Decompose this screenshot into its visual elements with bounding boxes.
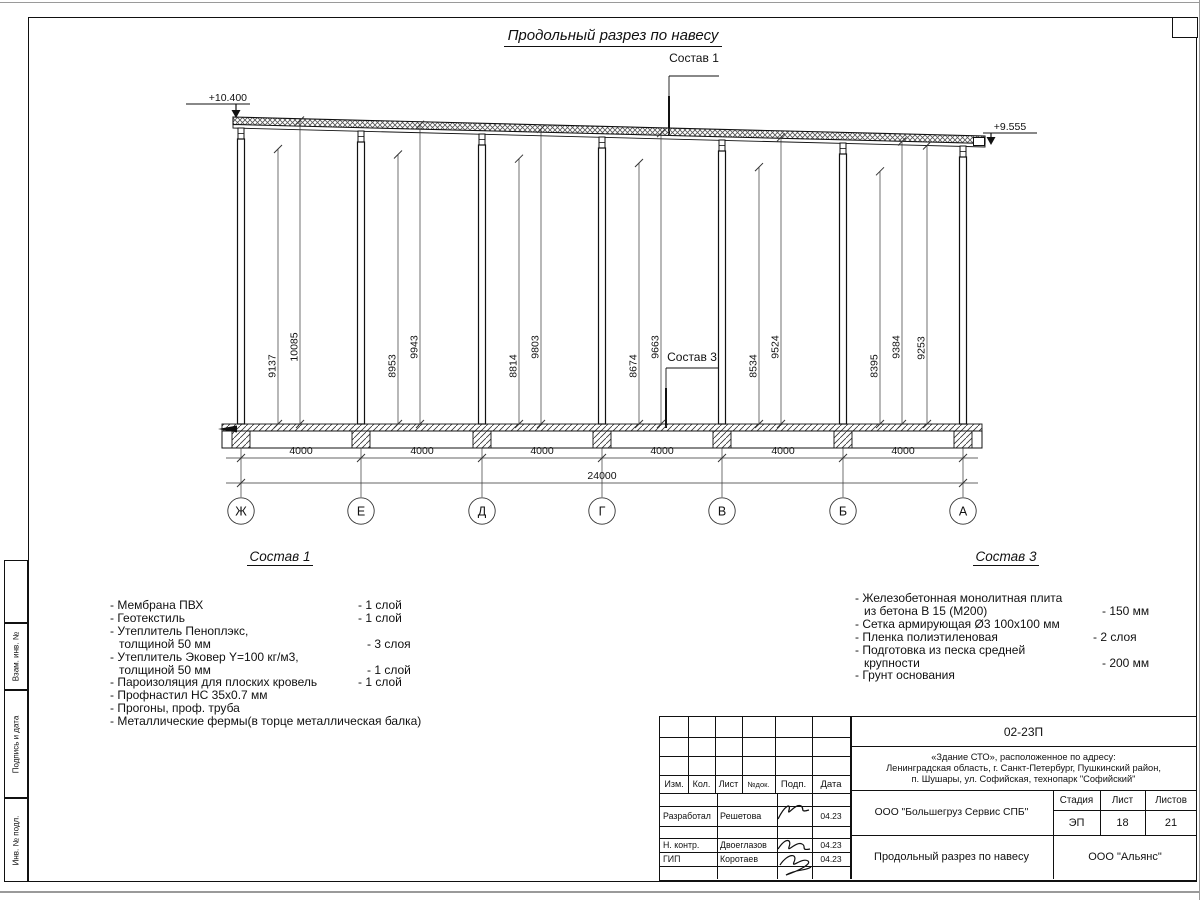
- spec-row: - Утеплитель Пеноплэкс,: [110, 625, 455, 638]
- bay-dimension: 8534 9524: [748, 133, 786, 428]
- column: [599, 137, 606, 424]
- svg-text:8395: 8395: [869, 354, 881, 378]
- callout-slab: Состав 3: [666, 350, 718, 428]
- spec-row: - Пленка полиэтиленовая- 2 слоя: [855, 631, 1200, 644]
- tb-doc-code: 02-23П: [850, 717, 1197, 746]
- svg-text:А: А: [959, 505, 968, 519]
- tb-date-gip: 04.23: [812, 852, 850, 866]
- tb-col-list: Лист: [715, 775, 742, 793]
- tb-org: ООО "Альянс": [1053, 835, 1197, 879]
- margin-box-podpis: Подпись и дата: [4, 690, 28, 798]
- callout-slab-label: Состав 3: [667, 350, 717, 364]
- margin-box-empty: [4, 560, 28, 623]
- axis-bubbles: Ж Е Д Г В Б А: [228, 498, 976, 524]
- elevation-left-value: +10.400: [209, 92, 247, 104]
- column: [960, 146, 967, 424]
- svg-text:Е: Е: [357, 505, 365, 519]
- spec-row: - Геотекстиль- 1 слой: [110, 612, 455, 625]
- margin-box-vzam: Взам. инв. №: [4, 623, 28, 690]
- title-block: Изм. Кол. Лист №док. Подп. Дата Разработ…: [659, 716, 1197, 881]
- sostav3-list: - Железобетонная монолитная плита из бет…: [855, 592, 1200, 682]
- callout-roof: Состав 1: [669, 51, 719, 139]
- tb-role-ncontrol: Н. контр.: [660, 838, 717, 852]
- svg-text:8814: 8814: [508, 354, 520, 378]
- height-end: 9253: [916, 336, 928, 360]
- paper-edge-bottom: [0, 891, 1200, 893]
- spec-row: - Утеплитель Эковер Y=100 кг/м3,: [110, 651, 455, 664]
- bay-dimension: 8814 9803: [508, 125, 546, 428]
- svg-text:9803: 9803: [530, 335, 542, 359]
- roof-band: [233, 117, 985, 147]
- bay-dimension: 8953 9943: [387, 121, 425, 428]
- ground-slab: [218, 424, 982, 448]
- svg-text:В: В: [718, 505, 726, 519]
- column: [719, 140, 726, 424]
- tb-sheets-value: 21: [1145, 810, 1197, 835]
- bay-dimension: 8674 9663: [628, 129, 666, 428]
- tb-sheet-value: 18: [1100, 810, 1145, 835]
- tb-date-ncontrol: 04.23: [812, 838, 850, 852]
- margin-label-podpis: Подпись и дата: [12, 715, 21, 773]
- signature-approvers: [774, 835, 816, 879]
- spec-row: толщиной 50 мм- 3 слоя: [110, 638, 455, 651]
- margin-label-vzam: Взам. инв. №: [12, 632, 21, 682]
- sostav1-heading: Состав 1: [210, 549, 350, 564]
- spec-row: - Грунт основания: [855, 669, 1200, 682]
- span-value: 4000: [771, 445, 795, 457]
- svg-text:8534: 8534: [748, 354, 760, 378]
- total-span-value: 24000: [587, 470, 616, 482]
- tb-col-podp: Подп.: [775, 775, 812, 793]
- margin-label-inv: Инв. № подл.: [12, 815, 21, 865]
- tb-stage-label: Стадия: [1053, 790, 1100, 810]
- elevation-mark-right: +9.555: [983, 121, 1037, 145]
- spec-row: - Подготовка из песка средней: [855, 644, 1200, 657]
- span-value: 4000: [410, 445, 434, 457]
- column: [840, 143, 847, 424]
- tb-col-data: Дата: [812, 775, 850, 793]
- callout-roof-label: Состав 1: [669, 51, 719, 65]
- sostav1-list: - Мембрана ПВХ- 1 слой - Геотекстиль- 1 …: [110, 599, 455, 728]
- elevation-right-value: +9.555: [994, 121, 1027, 133]
- svg-text:9524: 9524: [770, 335, 782, 359]
- tb-stage-value: ЭП: [1053, 810, 1100, 835]
- bay-dimension: 8395 9384 9253: [869, 138, 932, 429]
- tb-col-izm: Изм.: [660, 775, 688, 793]
- tb-role-gip: ГИП: [660, 852, 717, 866]
- svg-text:9943: 9943: [409, 335, 421, 359]
- spec-row: - Сетка армирующая Ø3 100x100 мм: [855, 618, 1200, 631]
- svg-text:Г: Г: [599, 505, 606, 519]
- column: [479, 134, 486, 424]
- tb-name-ncontrol: Двоеглазов: [717, 838, 777, 852]
- span-value: 4000: [891, 445, 915, 457]
- tb-name-developer: Решетова: [717, 806, 777, 826]
- tb-company: ООО "Большегруз Сервис СПБ": [850, 790, 1053, 835]
- columns: [238, 128, 967, 424]
- span-dimensions: 4000 4000 4000 4000 4000 4000 24000: [226, 445, 978, 497]
- footing: [834, 431, 852, 448]
- roof-end-cap: [974, 138, 985, 146]
- tb-date-developer: 04.23: [812, 806, 850, 826]
- svg-text:9137: 9137: [267, 354, 279, 378]
- span-value: 4000: [650, 445, 674, 457]
- tb-doc-title: Продольный разрез по навесу: [850, 835, 1053, 879]
- tb-col-ndok: №док.: [742, 775, 775, 793]
- column: [358, 131, 365, 424]
- svg-text:8674: 8674: [628, 354, 640, 378]
- svg-text:Д: Д: [478, 505, 487, 519]
- tb-col-kol: Кол.: [688, 775, 715, 793]
- tb-name-gip: Коротаев: [717, 852, 777, 866]
- bay-dimension: 9137 10085: [267, 117, 305, 429]
- margin-box-inv: Инв. № подл.: [4, 798, 28, 882]
- svg-text:10085: 10085: [289, 332, 301, 361]
- footing: [232, 431, 250, 448]
- footing: [473, 431, 491, 448]
- section-drawing: Состав 1 +10.400 +9.555: [0, 0, 1200, 560]
- span-value: 4000: [530, 445, 554, 457]
- footing: [954, 431, 972, 448]
- spec-row: - Железобетонная монолитная плита: [855, 592, 1200, 605]
- column: [238, 128, 245, 424]
- svg-text:9384: 9384: [891, 335, 903, 359]
- svg-text:9663: 9663: [650, 335, 662, 359]
- tb-object-address: «Здание СТО», расположенное по адресу: Л…: [850, 746, 1197, 790]
- tb-role-developer: Разработал: [660, 806, 717, 826]
- signature-developer: [775, 797, 815, 831]
- svg-text:Ж: Ж: [235, 505, 247, 519]
- footing: [352, 431, 370, 448]
- span-value: 4000: [289, 445, 313, 457]
- svg-text:8953: 8953: [387, 354, 399, 378]
- footing: [593, 431, 611, 448]
- spec-row: из бетона В 15 (М200)- 150 мм: [855, 605, 1200, 618]
- spec-row: - Металлические фермы(в торце металличес…: [110, 715, 455, 728]
- tb-sheet-label: Лист: [1100, 790, 1145, 810]
- footing: [713, 431, 731, 448]
- svg-text:Б: Б: [839, 505, 847, 519]
- elevation-mark-left: +10.400: [186, 92, 250, 118]
- tb-sheets-label: Листов: [1145, 790, 1197, 810]
- sostav3-heading: Состав 3: [936, 549, 1076, 564]
- spec-row: - Мембрана ПВХ- 1 слой: [110, 599, 455, 612]
- slab-hatch-strip: [222, 424, 982, 431]
